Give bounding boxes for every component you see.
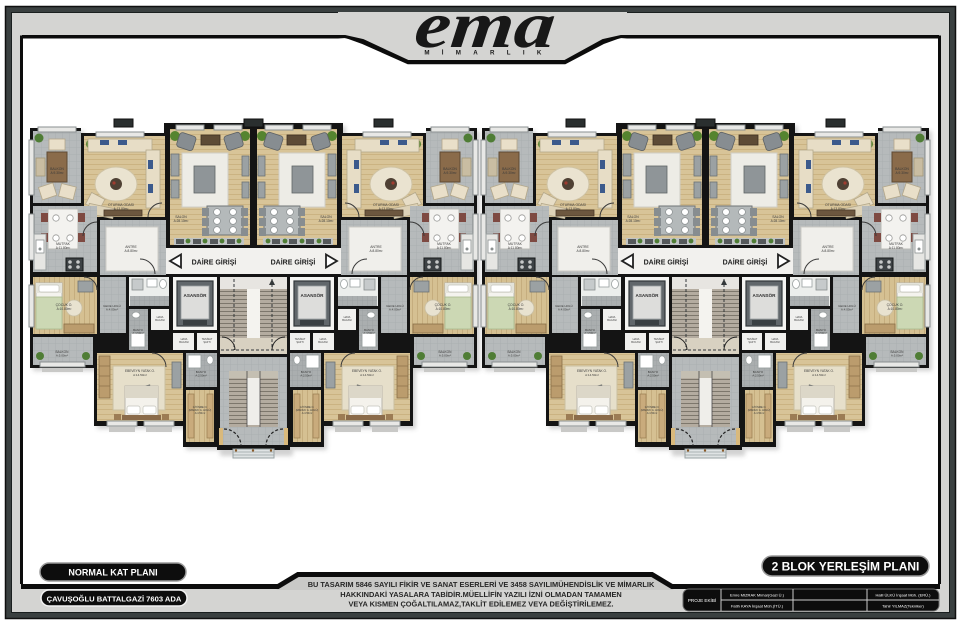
svg-text:A:4.50m²: A:4.50m² [302,411,313,415]
svg-text:A:5.00m²: A:5.00m² [439,354,451,358]
svg-text:2 BLOK YERLEŞİM PLANI: 2 BLOK YERLEŞİM PLANI [772,559,920,574]
svg-text:PROJE EKİBİ: PROJE EKİBİ [688,597,716,603]
svg-text:A:11.80m²: A:11.80m² [437,246,451,250]
svg-text:Fatih KAYA İnşaat Müh.(İTÜ.): Fatih KAYA İnşaat Müh.(İTÜ.) [731,604,784,609]
svg-text:A:10.80m²: A:10.80m² [57,307,72,311]
svg-text:BU TASARIM 5846 SAYILI FİKİR V: BU TASARIM 5846 SAYILI FİKİR VE SANAT ES… [308,580,655,589]
svg-text:A:11.80m²: A:11.80m² [56,246,70,250]
svg-text:A:8.80m²: A:8.80m² [370,249,383,253]
svg-text:A:10.80m²: A:10.80m² [436,307,451,311]
svg-text:BACASI: BACASI [342,318,352,322]
svg-text:A:4.50m²: A:4.50m² [363,331,374,335]
svg-text:BACASI: BACASI [155,318,165,322]
svg-text:A:4.00m²: A:4.00m² [389,307,401,311]
svg-text:A:2.50m²: A:2.50m² [195,373,206,377]
svg-text:Emre MIZRAK Mimar(Gazi Ü.): Emre MIZRAK Mimar(Gazi Ü.) [730,593,785,598]
svg-text:A:4.50m²: A:4.50m² [195,411,206,415]
svg-text:NORMAL KAT PLANI: NORMAL KAT PLANI [68,568,157,578]
svg-text:DAİRE GİRİŞİ: DAİRE GİRİŞİ [192,259,237,267]
svg-text:A:13.80m²: A:13.80m² [114,207,129,211]
svg-text:MİMARLIK: MİMARLIK [424,50,553,57]
svg-text:A:8.80m²: A:8.80m² [125,249,138,253]
svg-text:BACASI: BACASI [179,340,189,344]
svg-text:A:28.10m²: A:28.10m² [319,219,334,223]
svg-text:A:4.50m²: A:4.50m² [132,331,143,335]
svg-text:A:9.30m²: A:9.30m² [444,171,457,175]
svg-text:A:4.00m²: A:4.00m² [106,307,118,311]
svg-text:A:28.10m²: A:28.10m² [174,219,189,223]
svg-text:A:2.50m²: A:2.50m² [300,373,311,377]
svg-text:A:9.30m²: A:9.30m² [51,171,64,175]
svg-text:A:14.50m²: A:14.50m² [133,373,147,377]
svg-text:ÇAVUŞOĞLU BATTALGAZİ 7603 ADA: ÇAVUŞOĞLU BATTALGAZİ 7603 ADA [47,595,182,604]
svg-text:A:14.50m²: A:14.50m² [360,373,374,377]
svg-text:A:13.80m²: A:13.80m² [379,207,394,211]
svg-text:ŞAFTI: ŞAFTI [203,340,211,344]
svg-text:Tahir YILMAZ(Tekniker): Tahir YILMAZ(Tekniker) [882,604,924,609]
svg-text:HAKKINDAKİ YASALARA TABİDİR.MÜ: HAKKINDAKİ YASALARA TABİDİR.MÜELLİFİN YA… [340,590,622,599]
svg-text:VEYA KISMEN ÇOĞALTILAMAZ,TAKLİ: VEYA KISMEN ÇOĞALTILAMAZ,TAKLİT EDİLEMEZ… [348,600,613,609]
svg-text:ASANSÖR: ASANSÖR [301,292,325,298]
svg-text:BACASI: BACASI [318,340,328,344]
svg-text:DAİRE GİRİŞİ: DAİRE GİRİŞİ [271,259,316,267]
svg-text:ŞAFTI: ŞAFTI [296,340,304,344]
svg-text:ASANSÖR: ASANSÖR [184,292,208,298]
svg-text:Halil ÜLKÜ İnşaat Müh. (ERÜ.): Halil ÜLKÜ İnşaat Müh. (ERÜ.) [876,593,932,598]
svg-text:A:5.00m²: A:5.00m² [56,354,68,358]
